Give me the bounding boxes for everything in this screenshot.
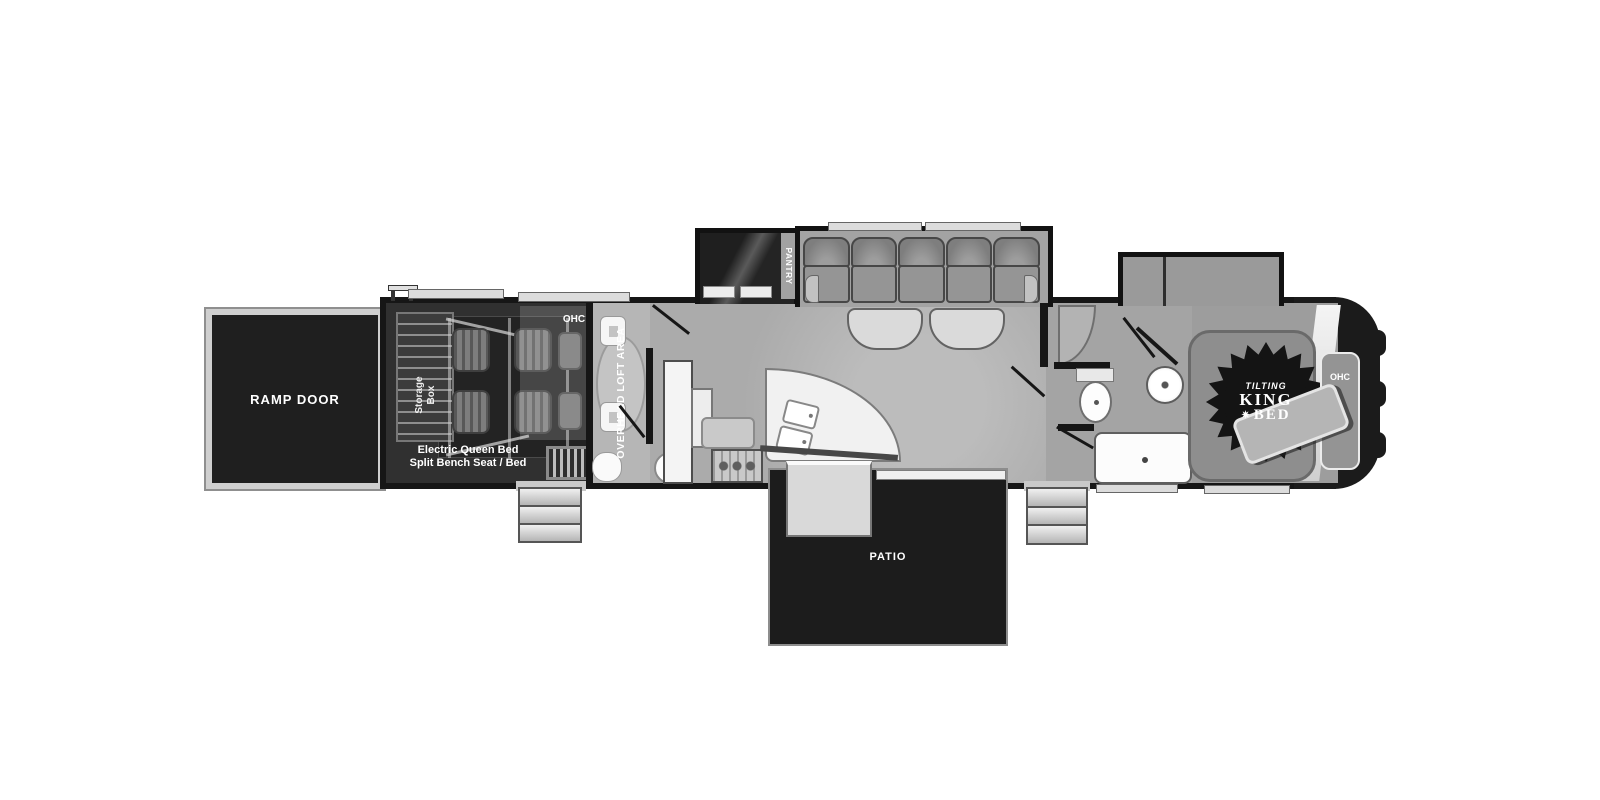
seat-frame-bar — [508, 318, 511, 458]
rv-floor-plan: RAMP DOOR Storage Box OHC Electric Queen… — [0, 0, 1600, 800]
patio-rail — [876, 470, 1006, 480]
sofa-armrest — [805, 275, 819, 303]
seat-frame-bar — [448, 318, 451, 458]
wall — [646, 348, 653, 444]
slide-trim — [1204, 485, 1290, 494]
roof-ladder-leg — [391, 291, 395, 301]
step — [1026, 487, 1088, 508]
sofa-back-cushions — [803, 237, 1040, 267]
sofa-seat-cushion — [851, 265, 898, 303]
front-cap-bump — [1374, 432, 1386, 458]
badge-burst-icon: ✷ — [1241, 408, 1251, 423]
shelf — [703, 286, 735, 298]
garage-note-line1: Electric Queen Bed — [394, 444, 542, 457]
toilet — [1079, 381, 1112, 423]
shower — [1146, 366, 1184, 404]
ramp-door: RAMP DOOR — [212, 315, 378, 483]
wall — [586, 303, 593, 483]
step — [518, 523, 582, 543]
sofa-back-cushion — [898, 237, 945, 267]
step — [1026, 524, 1088, 545]
ramp-door-label: RAMP DOOR — [250, 392, 340, 407]
wall — [1040, 303, 1048, 367]
slide-trim — [518, 292, 630, 302]
step — [518, 505, 582, 525]
kitchen-prep-counter — [701, 417, 755, 449]
badge-bed-label: BED — [1254, 408, 1291, 423]
sofa-back-cushion — [993, 237, 1040, 267]
slide-trim — [925, 222, 1021, 231]
garage-note: Electric Queen Bed Split Bench Seat / Be… — [394, 444, 542, 474]
entry-platform — [786, 461, 872, 537]
wardrobe-slideout — [1118, 252, 1284, 306]
slide-trim — [828, 222, 922, 231]
tilting-king-bed-badge: TILTING KING ✷BED — [1206, 342, 1326, 462]
badge-king-label: KING — [1239, 391, 1292, 408]
slide-trim — [408, 289, 504, 299]
garage-entry-steps — [518, 489, 582, 543]
toilet-tank — [1076, 368, 1114, 382]
bench-seat — [452, 390, 490, 434]
sofa-armrest — [1024, 275, 1038, 303]
bench-seat — [452, 328, 490, 372]
sofa-back-cushion — [851, 237, 898, 267]
front-cap-bump — [1374, 330, 1386, 356]
storage-box-line1: Storage — [414, 376, 425, 413]
refrigerator — [663, 360, 693, 484]
step — [1026, 506, 1088, 527]
patio-label: PATIO — [870, 551, 907, 563]
loft-label: OVERHEAD LOFT AREA — [614, 313, 628, 473]
badge-text: TILTING KING ✷BED — [1206, 342, 1326, 462]
bedroom-ohc-label: OHC — [1330, 372, 1350, 382]
garage-note-line2: Split Bench Seat / Bed — [394, 457, 542, 470]
shelf — [740, 286, 772, 298]
slide-trim — [1096, 484, 1178, 493]
vanity-sink — [1094, 432, 1192, 484]
sofa-seat-cushions — [803, 265, 1040, 303]
main-entry-steps — [1026, 489, 1088, 545]
storage-box-line2: Box — [426, 386, 437, 405]
sofa-seat-cushion — [946, 265, 993, 303]
sofa-back-cushion — [803, 237, 850, 267]
step — [518, 487, 582, 507]
front-cap-bump — [1374, 381, 1386, 407]
storage-box-label: Storage Box — [414, 371, 438, 419]
pantry-label: PANTRY — [784, 238, 794, 294]
badge-bed-row: ✷BED — [1241, 408, 1290, 423]
sofa-seat-cushion — [898, 265, 945, 303]
sofa-back-cushion — [946, 237, 993, 267]
wardrobe-divider — [1163, 257, 1166, 306]
stove — [711, 449, 763, 483]
